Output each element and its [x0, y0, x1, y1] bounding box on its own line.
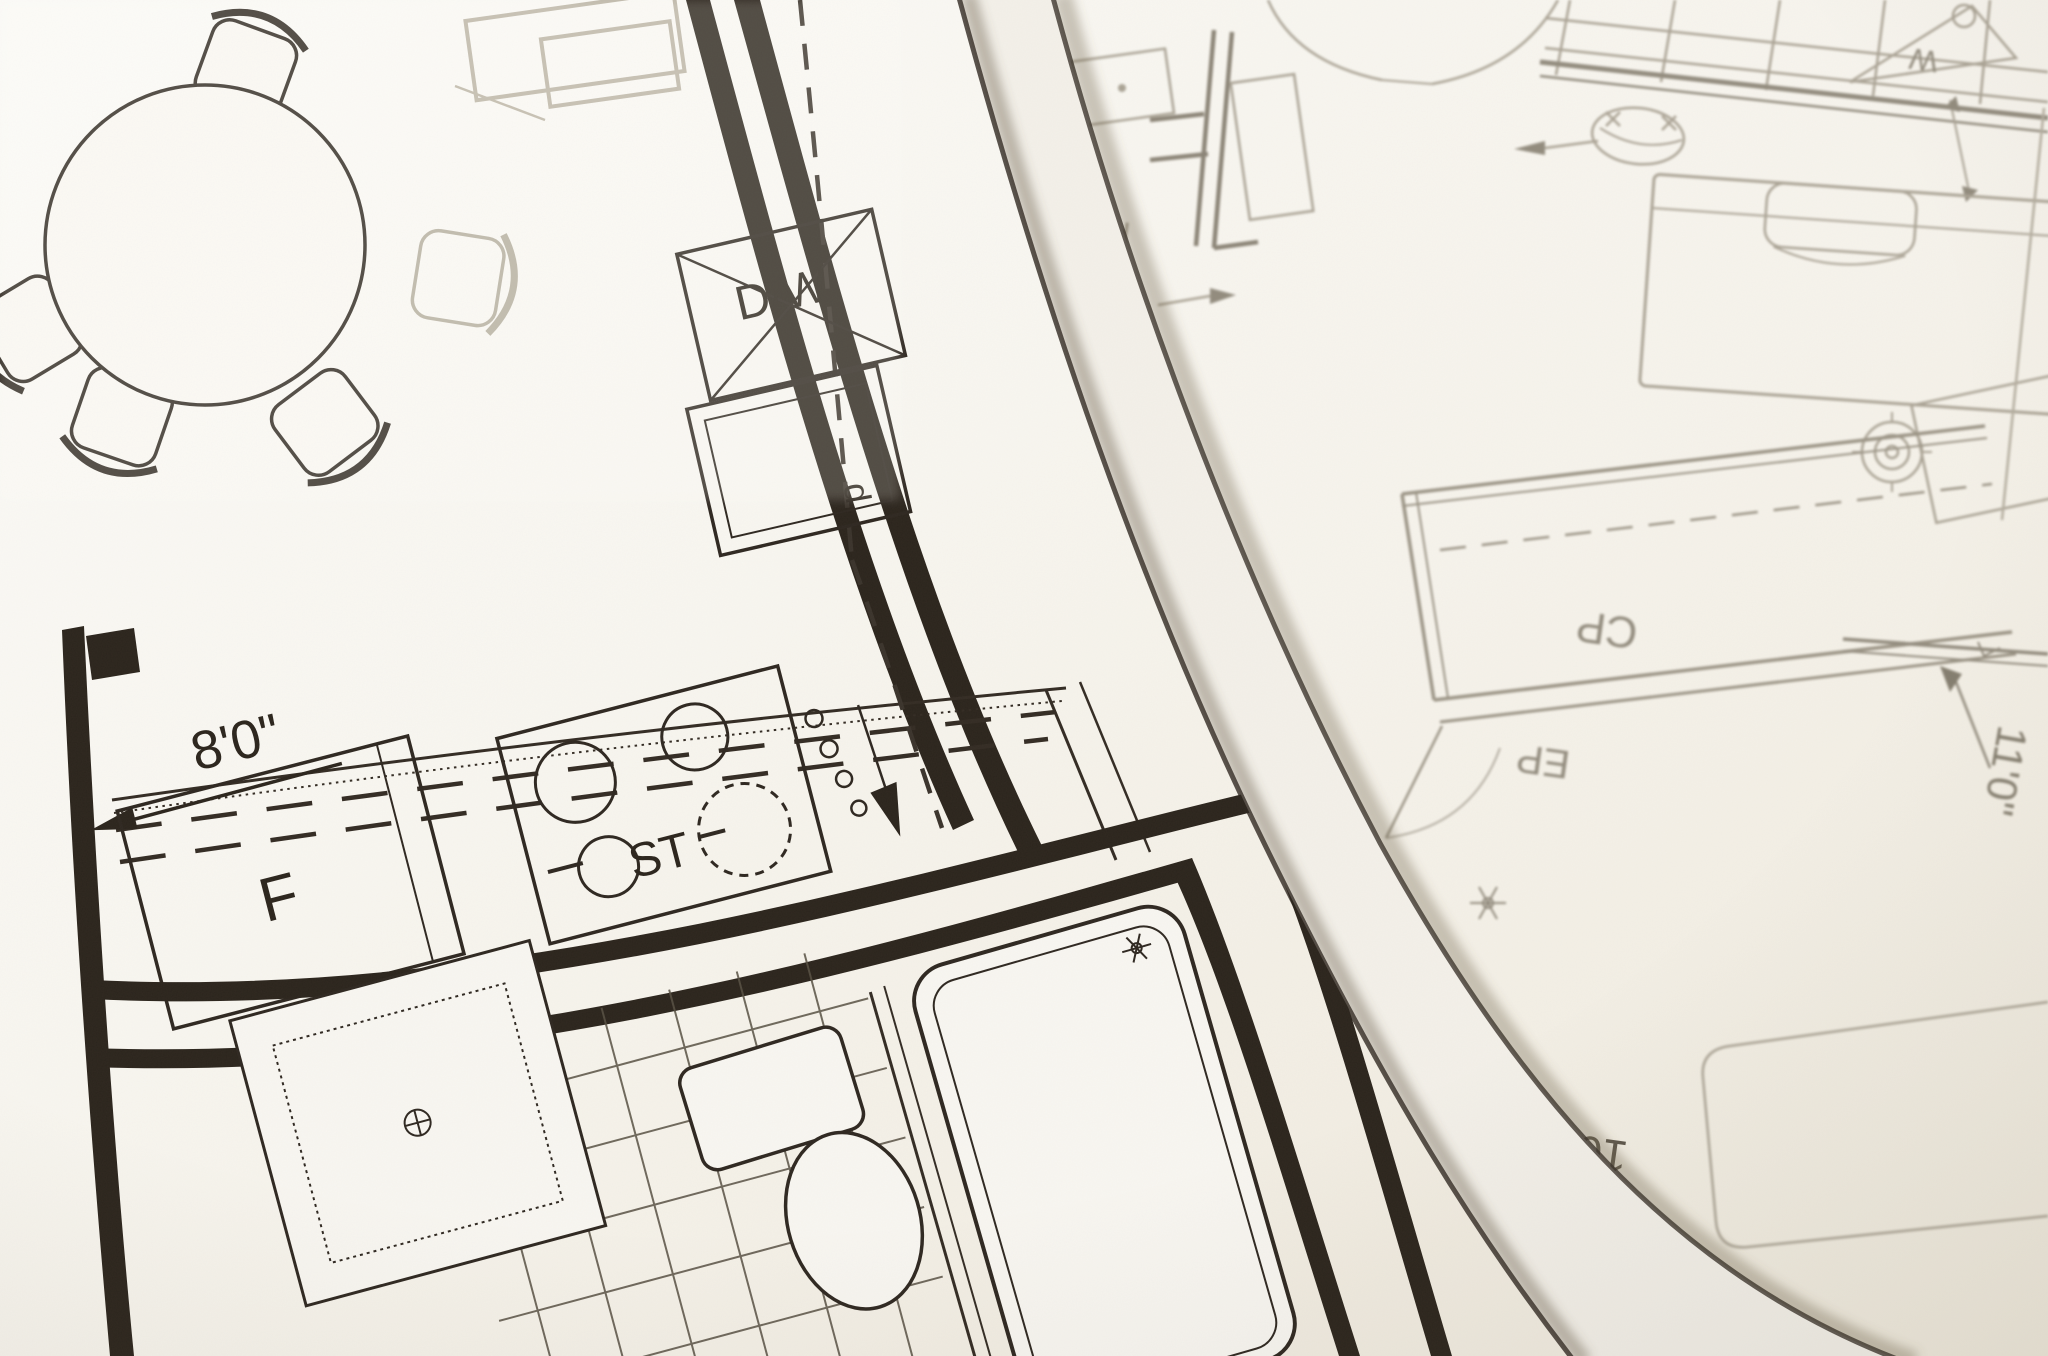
paper-grain: [0, 0, 2048, 1356]
blueprint-scene: W: [0, 0, 2048, 1356]
blueprint-photo: W: [0, 0, 2048, 1356]
